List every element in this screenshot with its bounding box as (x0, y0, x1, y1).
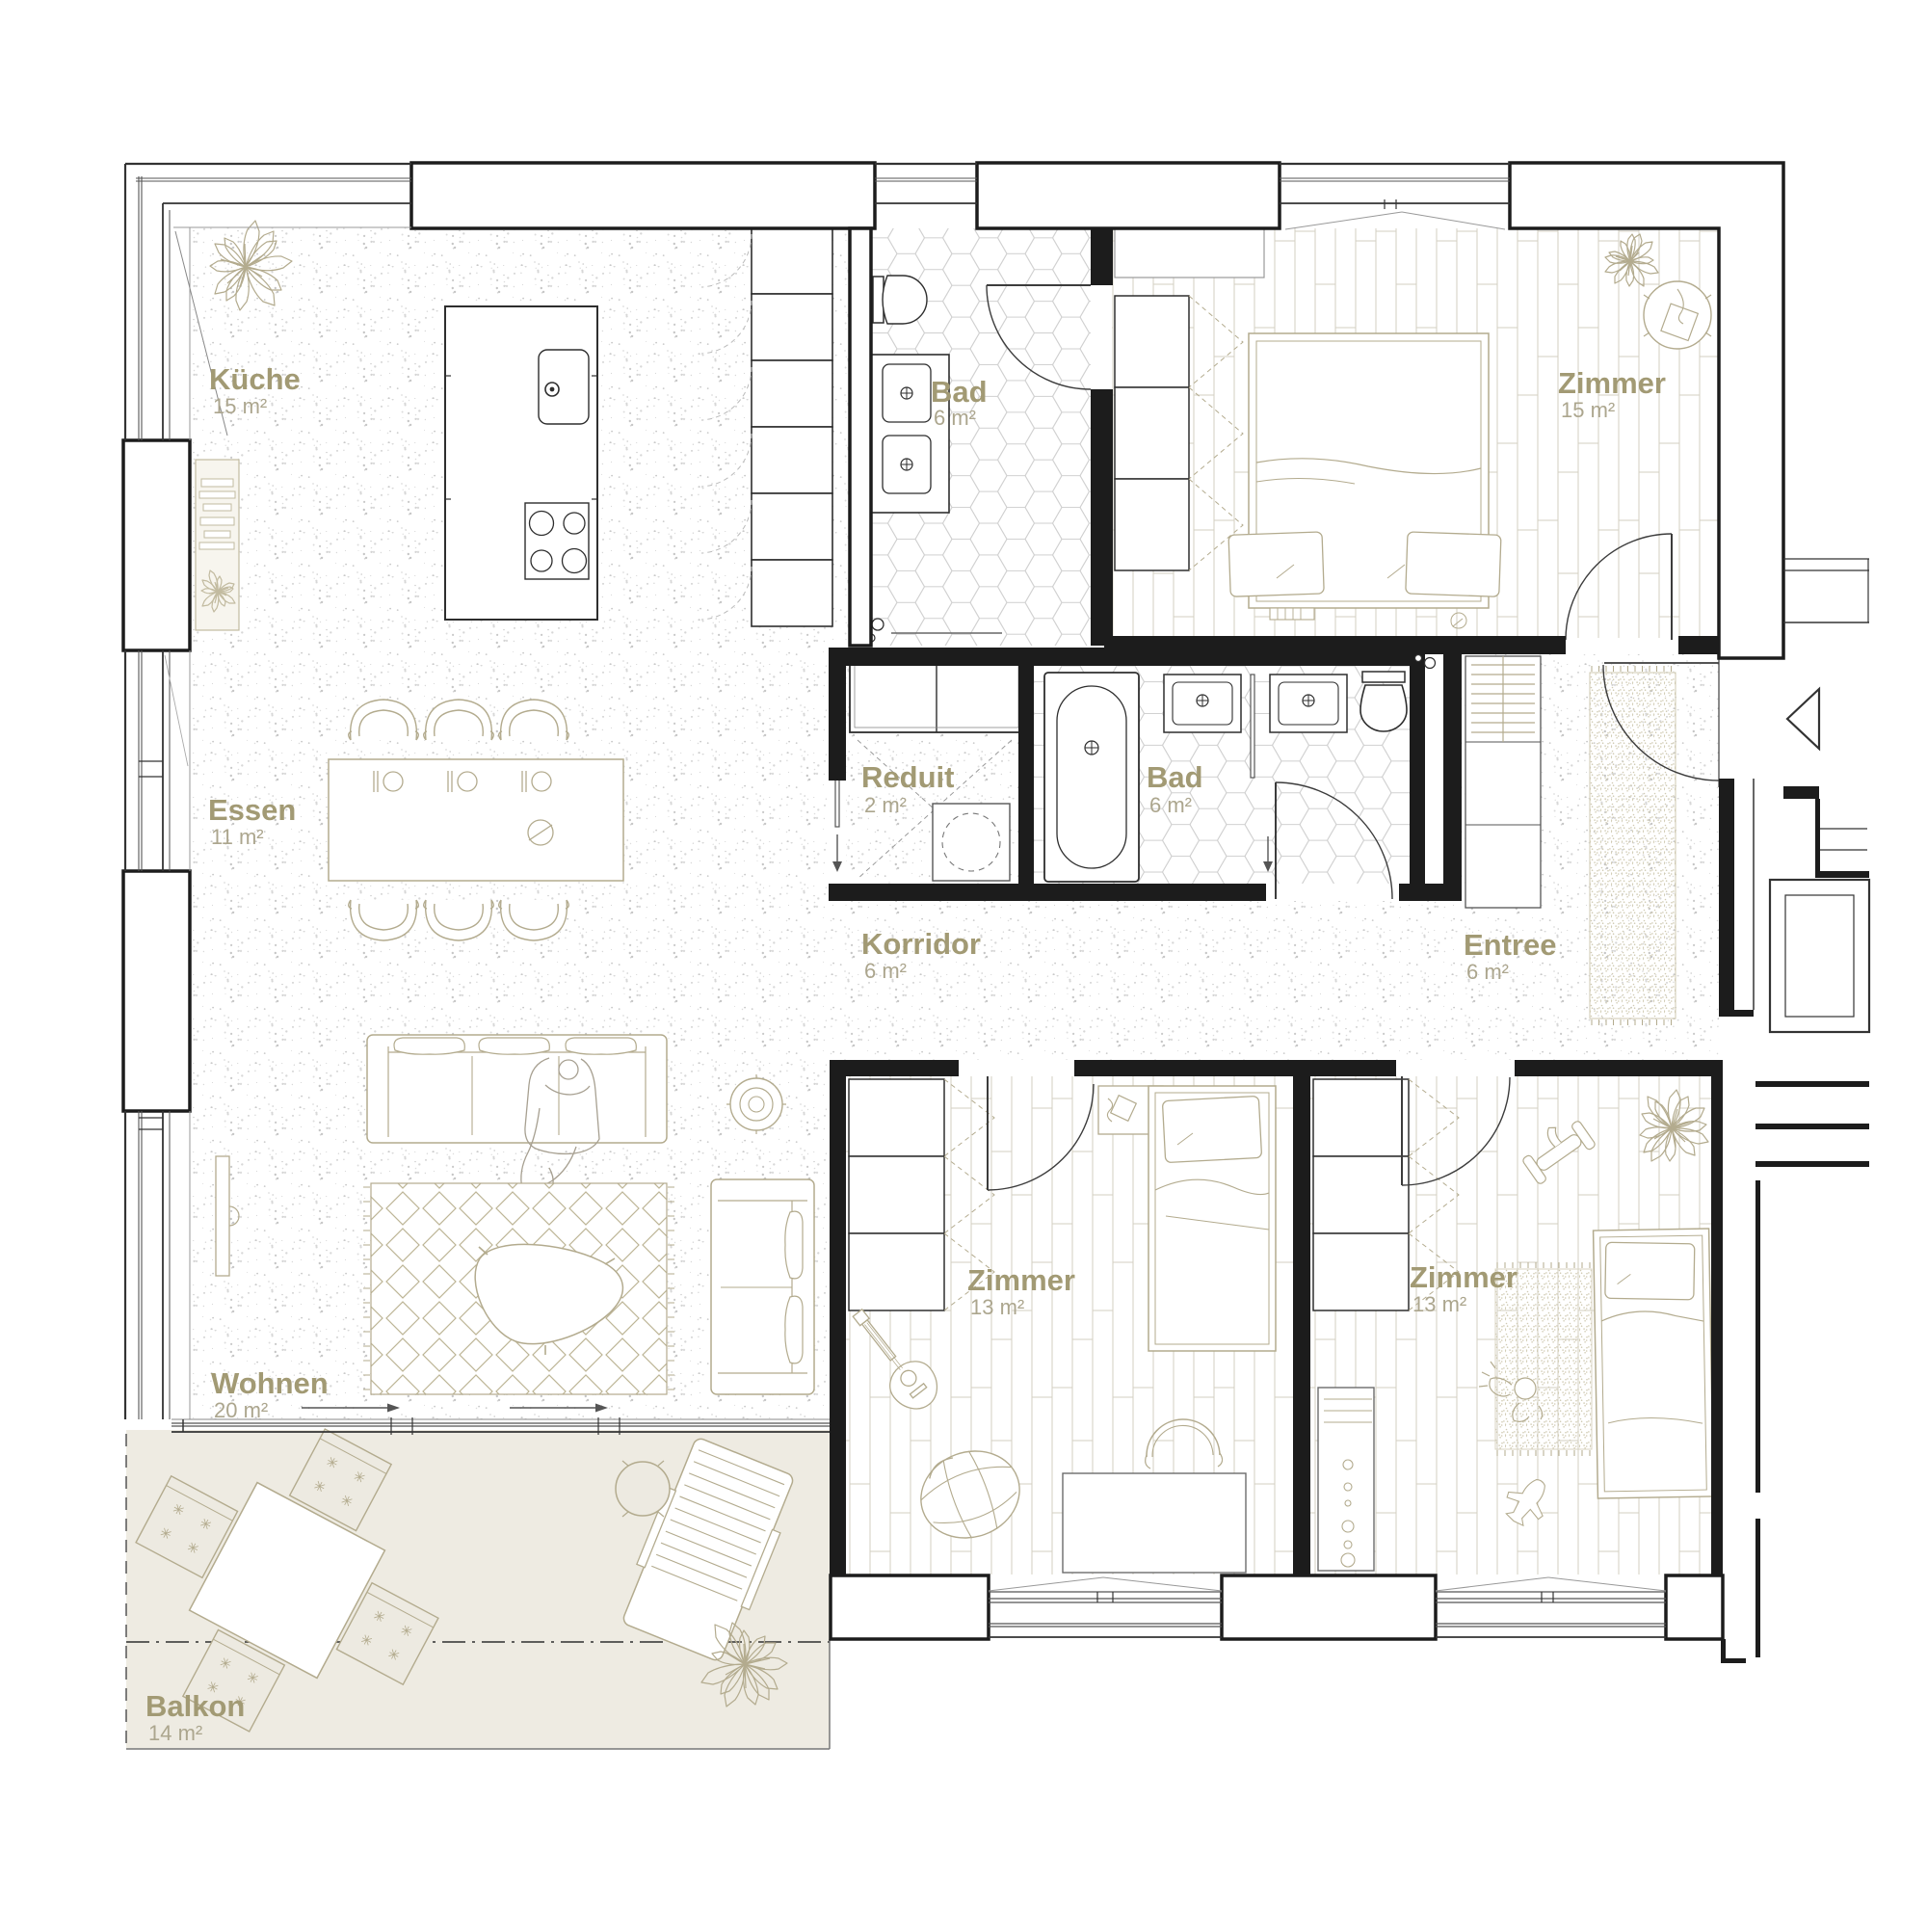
svg-text:20 m²: 20 m² (214, 1398, 268, 1422)
svg-text:14 m²: 14 m² (148, 1721, 202, 1745)
svg-text:Küche: Küche (209, 362, 301, 396)
svg-text:Zimmer: Zimmer (1558, 366, 1666, 400)
svg-text:13 m²: 13 m² (1412, 1292, 1466, 1316)
svg-text:Balkon: Balkon (145, 1689, 245, 1723)
svg-text:Zimmer: Zimmer (1410, 1260, 1518, 1294)
svg-text:13 m²: 13 m² (970, 1295, 1024, 1319)
svg-text:11 m²: 11 m² (211, 825, 264, 849)
svg-text:Essen: Essen (208, 793, 296, 827)
svg-text:Entree: Entree (1464, 928, 1556, 962)
svg-text:Reduit: Reduit (861, 760, 954, 794)
svg-text:6 m²: 6 m² (1149, 793, 1192, 817)
svg-text:6 m²: 6 m² (934, 406, 976, 430)
svg-text:6 m²: 6 m² (1466, 960, 1509, 984)
svg-text:15 m²: 15 m² (213, 394, 267, 418)
svg-text:Korridor: Korridor (861, 927, 981, 961)
svg-text:Bad: Bad (1147, 760, 1203, 794)
svg-text:2 m²: 2 m² (864, 793, 907, 817)
svg-text:Bad: Bad (931, 375, 988, 409)
svg-text:15 m²: 15 m² (1561, 398, 1615, 422)
svg-text:Wohnen: Wohnen (211, 1366, 329, 1400)
svg-text:6 m²: 6 m² (864, 959, 907, 983)
svg-text:Zimmer: Zimmer (967, 1263, 1075, 1297)
